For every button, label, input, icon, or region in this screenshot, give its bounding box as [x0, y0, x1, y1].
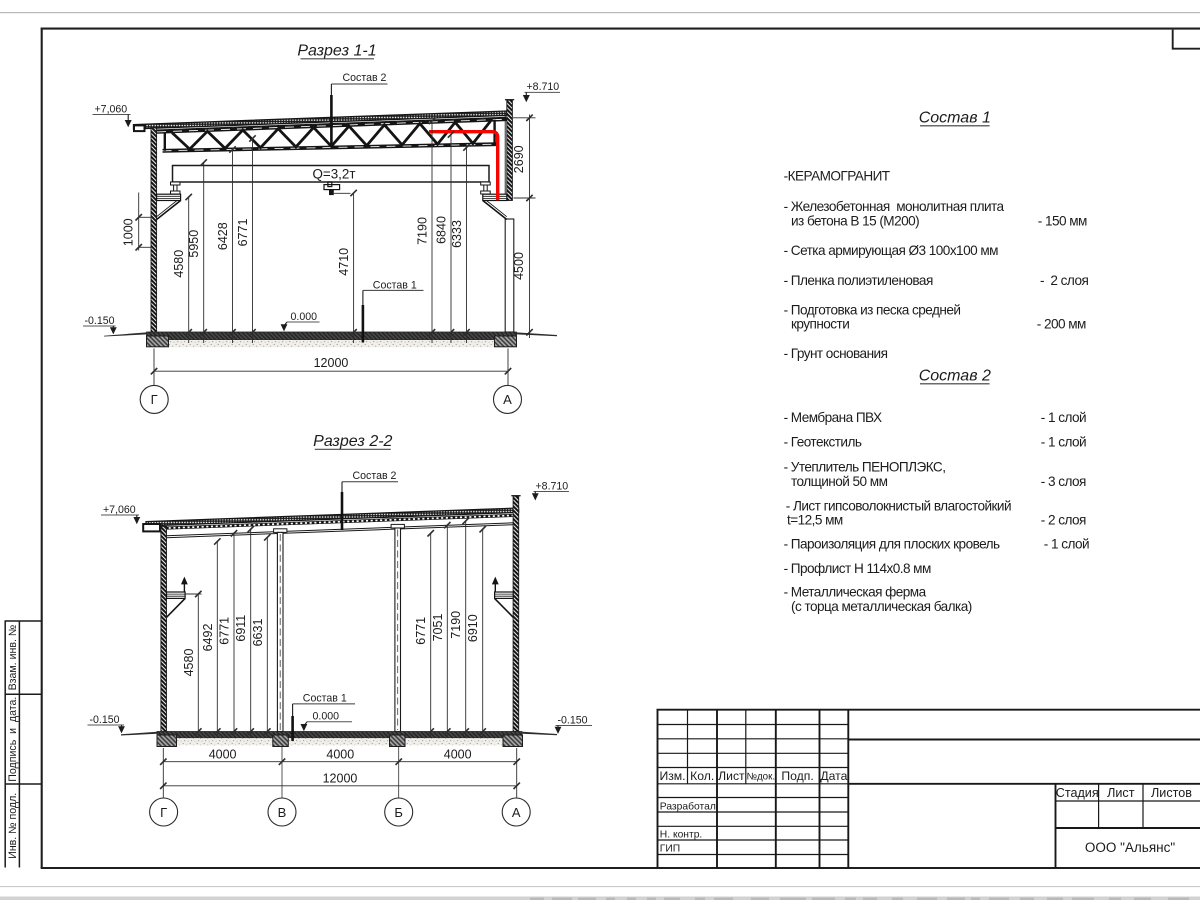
svg-text:+7,060: +7,060 [95, 103, 128, 115]
svg-text:Состав 1: Состав 1 [373, 279, 417, 291]
svg-text:Инв. № подл.: Инв. № подл. [7, 793, 19, 859]
svg-text:Б: Б [394, 805, 403, 820]
svg-text:(с торца металлическая балка): (с торца металлическая балка) [791, 599, 972, 614]
svg-text:4710: 4710 [337, 248, 351, 276]
svg-text:- Металлическая ферма: - Металлическая ферма [784, 585, 927, 600]
svg-text:ООО "Альянс": ООО "Альянс" [1085, 840, 1175, 855]
svg-text:Г: Г [160, 805, 167, 820]
svg-text:6840: 6840 [435, 216, 449, 244]
svg-text:4000: 4000 [209, 747, 237, 761]
svg-text:-0.150: -0.150 [85, 315, 115, 327]
svg-text:+8.710: +8.710 [536, 480, 569, 492]
svg-text:В: В [278, 805, 287, 820]
svg-text:+7,060: +7,060 [103, 504, 136, 516]
svg-text:Листов: Листов [1151, 786, 1192, 800]
svg-text:-0.150: -0.150 [558, 714, 588, 726]
svg-text:0.000: 0.000 [313, 711, 340, 723]
svg-text:А: А [503, 392, 512, 407]
svg-text:- 150 мм: - 150 мм [1038, 214, 1087, 229]
svg-text:- Профлист Н 114х0.8 мм: - Профлист Н 114х0.8 мм [784, 561, 931, 576]
svg-text:Состав 2: Состав 2 [919, 367, 991, 384]
svg-text:крупности: крупности [791, 317, 849, 332]
svg-text:А: А [512, 805, 521, 820]
svg-text:- 1 слой: - 1 слой [1044, 537, 1089, 552]
svg-text:7190: 7190 [416, 217, 430, 245]
svg-text:6333: 6333 [450, 220, 464, 248]
svg-text:6631: 6631 [251, 619, 265, 647]
svg-text:-0.150: -0.150 [90, 714, 120, 726]
svg-text:Разрез 1-1: Разрез 1-1 [297, 43, 376, 60]
svg-text:4500: 4500 [512, 252, 526, 280]
svg-text:- Мембрана ПВХ: - Мембрана ПВХ [784, 410, 882, 425]
svg-text:4580: 4580 [182, 649, 196, 677]
svg-text:Дата: Дата [820, 769, 847, 783]
svg-text:-КЕРАМОГРАНИТ: -КЕРАМОГРАНИТ [784, 169, 890, 184]
svg-text:t=12,5 мм: t=12,5 мм [787, 513, 843, 528]
svg-text:1000: 1000 [122, 218, 136, 246]
svg-text:- Лист гипсоволокнистый влагос: - Лист гипсоволокнистый влагостойкий [786, 498, 1011, 513]
svg-text:Состав 2: Состав 2 [353, 470, 397, 482]
svg-text:6428: 6428 [216, 222, 230, 250]
svg-text:- Геотекстиль: - Геотекстиль [784, 434, 862, 449]
svg-text:6910: 6910 [466, 614, 480, 642]
svg-text:Изм.: Изм. [659, 769, 685, 783]
svg-text:Подп.: Подп. [781, 769, 813, 783]
svg-text:- Пароизоляция для плоских кро: - Пароизоляция для плоских кровель [784, 537, 1000, 552]
svg-text:- Сетка армирующая Ø3 100х100: - Сетка армирующая Ø3 100х100 мм [784, 243, 999, 258]
svg-text:4580: 4580 [172, 250, 186, 278]
svg-text:ГИП: ГИП [660, 844, 680, 855]
svg-text:- 200 мм: - 200 мм [1037, 317, 1086, 332]
svg-text:Разрез 2-2: Разрез 2-2 [313, 433, 392, 450]
svg-text:7051: 7051 [431, 614, 445, 642]
svg-text:- 1 слой: - 1 слой [1041, 410, 1086, 425]
svg-text:из бетона В 15 (М200): из бетона В 15 (М200) [791, 214, 919, 229]
svg-text:толщиной 50 мм: толщиной 50 мм [791, 474, 888, 489]
svg-text:6771: 6771 [414, 617, 428, 645]
svg-text:Состав 1: Состав 1 [919, 109, 991, 126]
svg-text:- Грунт основания: - Грунт основания [784, 346, 888, 361]
svg-text:Q=3,2т: Q=3,2т [313, 167, 356, 182]
svg-text:5950: 5950 [187, 230, 201, 258]
svg-text:6911: 6911 [234, 615, 248, 642]
svg-text:Состав 1: Состав 1 [303, 693, 347, 705]
svg-text:12000: 12000 [323, 771, 358, 785]
svg-text:12000: 12000 [314, 356, 349, 370]
svg-text:7190: 7190 [449, 611, 463, 639]
svg-text:4000: 4000 [444, 747, 472, 761]
svg-text:- 2 слоя: - 2 слоя [1040, 273, 1088, 288]
svg-text:Состав 2: Состав 2 [343, 72, 387, 84]
svg-text:Г: Г [151, 392, 158, 407]
svg-text:- Пленка полиэтиленовая: - Пленка полиэтиленовая [784, 273, 933, 288]
svg-text:- 1 слой: - 1 слой [1041, 434, 1086, 449]
svg-text:Взам. инв. №: Взам. инв. № [7, 625, 19, 691]
svg-text:Лист: Лист [1107, 786, 1135, 800]
svg-text:- 3 слоя: - 3 слоя [1041, 474, 1086, 489]
svg-text:6492: 6492 [201, 624, 215, 652]
svg-text:6771: 6771 [236, 219, 250, 247]
svg-text:Разработал: Разработал [660, 801, 716, 813]
svg-text:0.000: 0.000 [291, 311, 318, 323]
svg-text:Н. контр.: Н. контр. [660, 830, 703, 841]
svg-text:Лист: Лист [718, 769, 745, 783]
svg-text:6771: 6771 [218, 617, 232, 645]
svg-text:- Железобетонная монолитная п: - Железобетонная монолитная плита [784, 199, 1005, 214]
svg-text:- Подготовка из песка средней: - Подготовка из песка средней [784, 302, 961, 317]
svg-text:№док.: №док. [746, 772, 775, 783]
svg-text:- 2 слоя: - 2 слоя [1041, 513, 1086, 528]
svg-text:- Утеплитель ПЕНОПЛЭКС,: - Утеплитель ПЕНОПЛЭКС, [784, 460, 946, 475]
svg-text:4000: 4000 [326, 747, 354, 761]
svg-text:Кол.: Кол. [690, 769, 714, 783]
svg-text:+8.710: +8.710 [527, 81, 560, 93]
svg-text:Стадия: Стадия [1056, 786, 1099, 800]
svg-text:Подпись и дата.: Подпись и дата. [7, 697, 19, 782]
svg-text:2690: 2690 [512, 145, 526, 173]
